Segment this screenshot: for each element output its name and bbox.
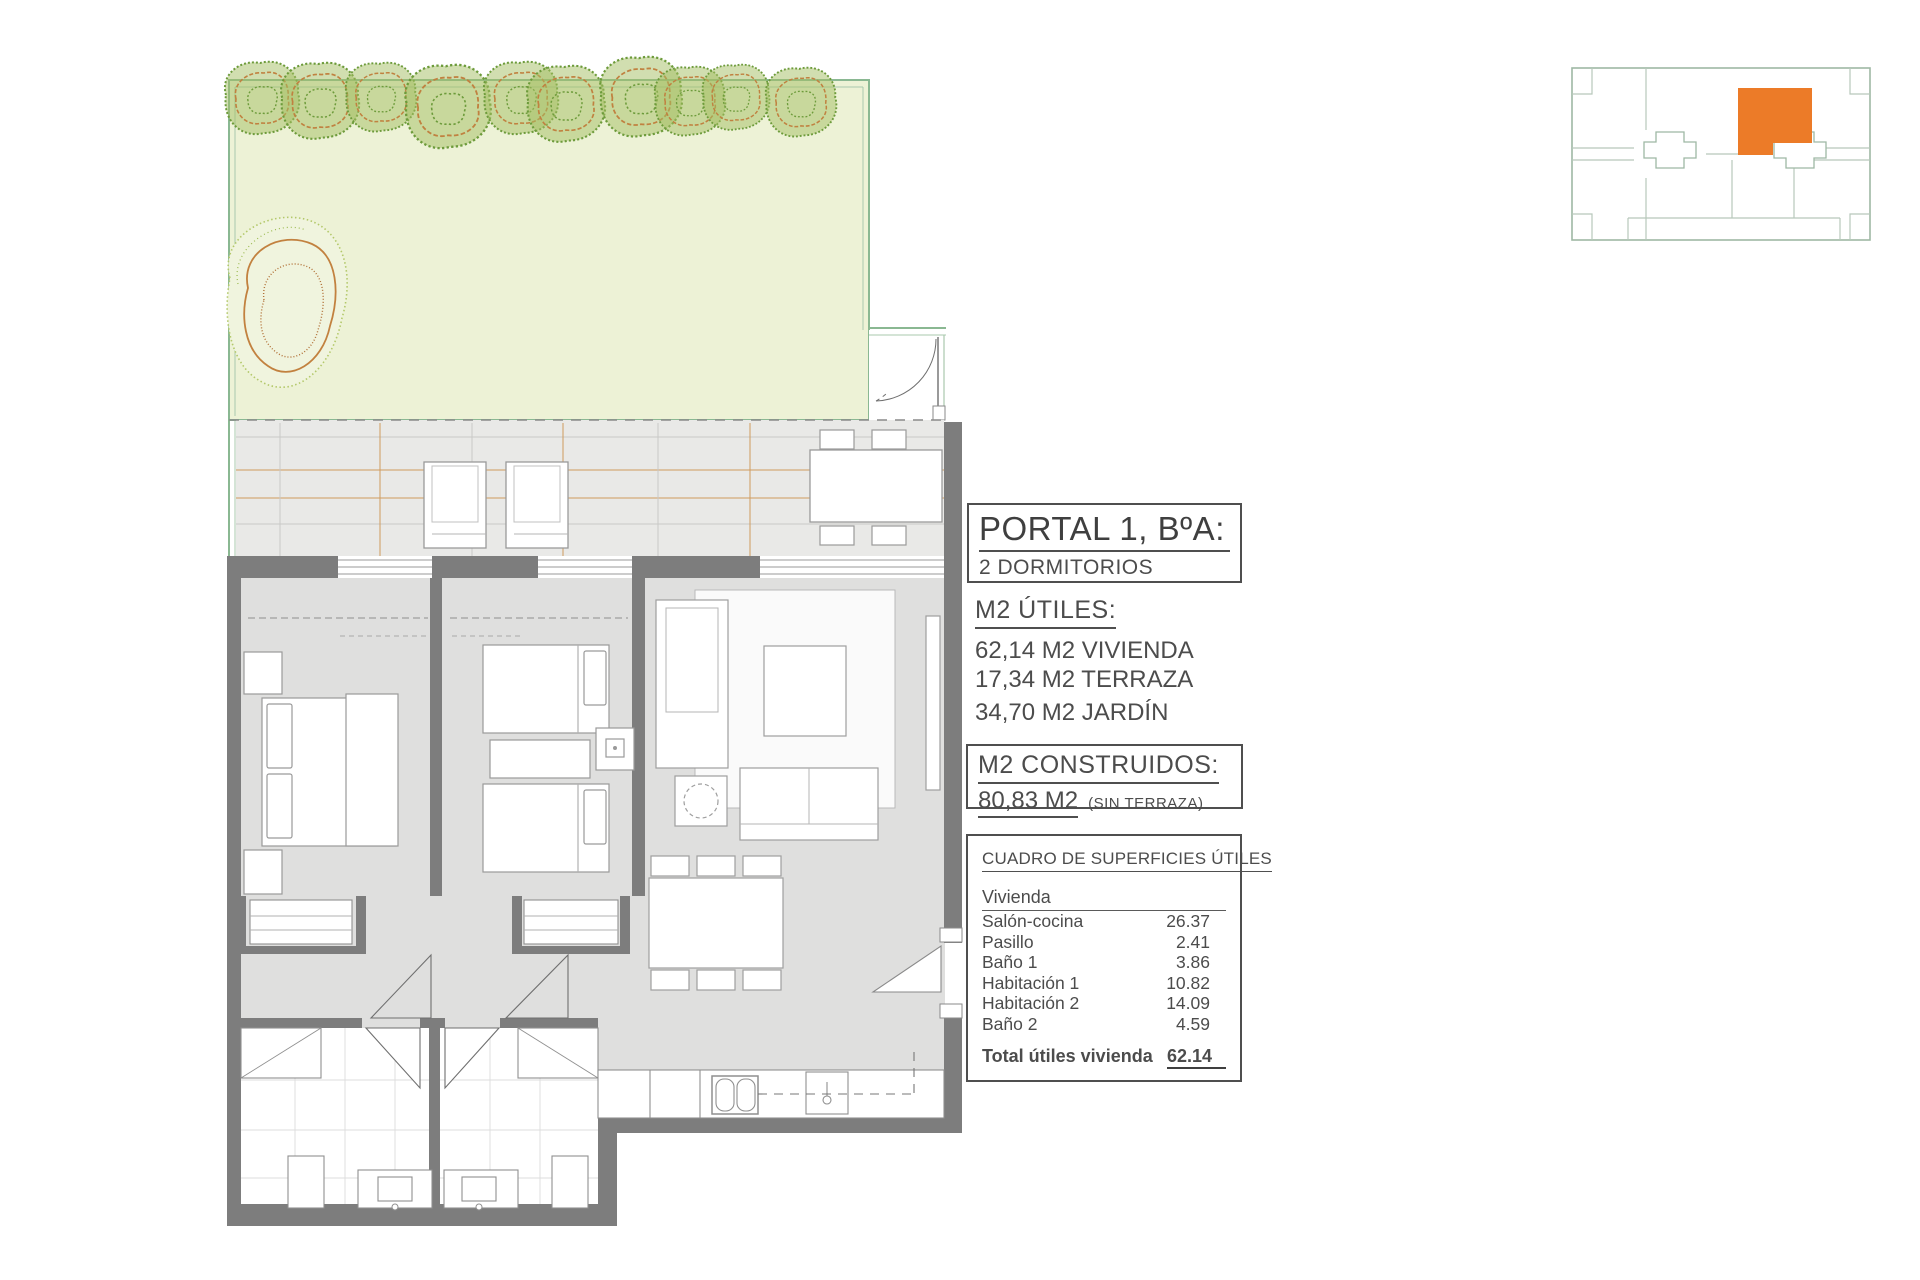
table-row: Habitación 110.82: [982, 973, 1226, 994]
garden-gate: [869, 328, 946, 420]
basin: [378, 1177, 412, 1201]
toilet: [552, 1156, 588, 1208]
console: [490, 740, 590, 778]
terrace-lounger: [424, 462, 486, 548]
terrace-lounger: [506, 462, 568, 548]
surface-table-group: Vivienda: [982, 887, 1226, 911]
floor-plan-sheet: PORTAL 1, BºA: 2 DORMITORIOS M2 ÚTILES: …: [0, 0, 1920, 1280]
nightstand: [244, 652, 282, 694]
pillow: [584, 651, 606, 705]
portal-title: PORTAL 1, BºA:: [979, 512, 1230, 552]
pillow: [267, 774, 292, 838]
table-row: Pasillo2.41: [982, 932, 1226, 953]
m2-construidos-note: (SIN TERRAZA): [1088, 795, 1203, 812]
m2-utiles-heading: M2 ÚTILES:: [975, 596, 1116, 629]
kitchen-hob: [806, 1072, 848, 1114]
surface-table-heading: CUADRO DE SUPERFICIES ÚTILES: [982, 849, 1272, 872]
duvet: [346, 694, 398, 846]
pillow: [267, 704, 292, 768]
nightstand: [244, 850, 282, 894]
floor-plan-drawing: [0, 0, 1920, 1280]
m2-construidos-heading: M2 CONSTRUIDOS:: [978, 751, 1219, 784]
dining-table: [649, 878, 783, 968]
m2-utiles-terraza: 17,34 M2 TERRAZA: [975, 665, 1194, 694]
title-block: PORTAL 1, BºA: 2 DORMITORIOS: [967, 503, 1242, 583]
surface-table: CUADRO DE SUPERFICIES ÚTILES Vivienda Sa…: [966, 834, 1242, 1082]
m2-construidos-value: 80,83 M2: [978, 787, 1078, 818]
table-row: Habitación 214.09: [982, 993, 1226, 1014]
toilet: [288, 1156, 324, 1208]
table-total-row: Total útiles vivienda62.14: [982, 1046, 1226, 1069]
m2-construidos-box: M2 CONSTRUIDOS: 80,83 M2(SIN TERRAZA): [966, 744, 1243, 809]
m2-utiles-vivienda: 62,14 M2 VIVIENDA: [975, 636, 1194, 665]
m2-utiles-section: M2 ÚTILES: 62,14 M2 VIVIENDA 17,34 M2 TE…: [975, 596, 1194, 727]
location-minimap: [1572, 68, 1870, 240]
terrace: [229, 420, 946, 558]
coffee-table: [764, 646, 846, 736]
m2-utiles-jardin: 34,70 M2 JARDÍN: [975, 698, 1194, 727]
table-row: Baño 13.86: [982, 952, 1226, 973]
table-row: Baño 24.59: [982, 1014, 1226, 1035]
portal-subtitle: 2 DORMITORIOS: [979, 556, 1230, 580]
dining-set: [649, 856, 783, 990]
pillow: [584, 790, 606, 844]
table-row: Salón-cocina26.37: [982, 911, 1226, 932]
tv-panel: [926, 616, 940, 790]
basin: [462, 1177, 496, 1201]
kitchen-sink: [712, 1076, 758, 1114]
